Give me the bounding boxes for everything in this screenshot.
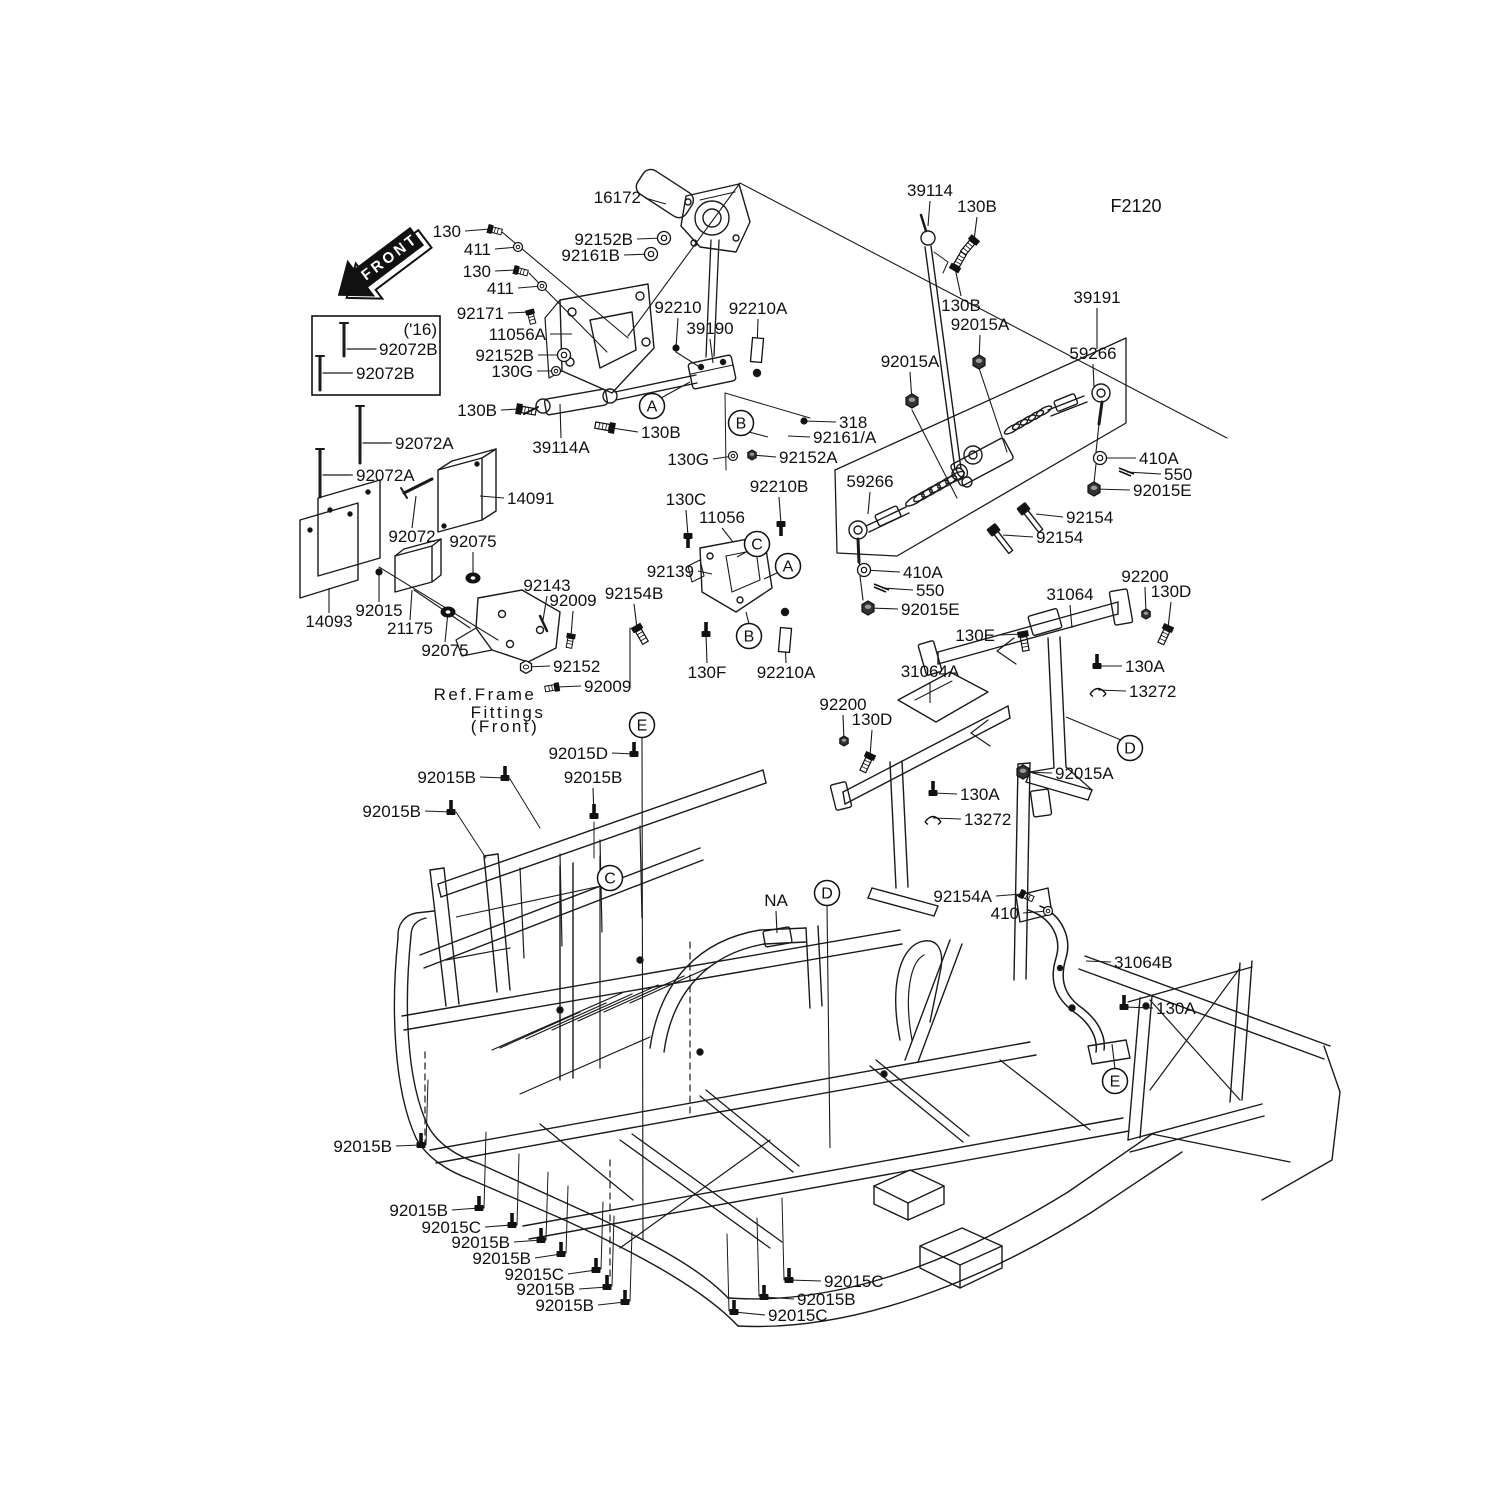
line-art-segment (520, 868, 524, 958)
line-art-segment (915, 681, 952, 700)
line-art-segment (1030, 768, 1054, 772)
part-label: 92152A (748, 448, 838, 467)
line-art-segment (843, 792, 845, 804)
line-art-segment (426, 1080, 428, 1145)
line-art-segment (603, 389, 617, 403)
screw-sm-icon (564, 633, 575, 649)
fiche-code: F2120 (1110, 196, 1161, 216)
washer-icon (1094, 452, 1107, 465)
callout-tail-line (456, 886, 601, 917)
part-number-text: 130B (941, 296, 981, 315)
stud-icon (621, 1290, 630, 1305)
line-art-segment (499, 611, 506, 618)
leader-line (634, 604, 637, 628)
part-number-text: 92015A (1055, 764, 1114, 783)
part-number-text: 92210A (729, 299, 788, 318)
callout-letter-text: C (604, 871, 616, 888)
line-art-segment (860, 576, 863, 600)
rect-icon (750, 338, 763, 363)
line-art-segment (517, 1154, 519, 1225)
line-art-segment (782, 1198, 784, 1280)
part-number-text: 92072A (356, 466, 415, 485)
washer-icon (645, 248, 658, 261)
part-label: 130B (957, 197, 997, 257)
nut-dark-icon (906, 394, 918, 408)
line-art-segment (308, 528, 312, 532)
part-number-text: 130C (666, 490, 707, 509)
line-art-segment (442, 524, 446, 528)
line-art-segment (568, 308, 576, 316)
washer-sm-icon (514, 243, 523, 252)
line-art-segment (874, 1186, 908, 1220)
screw-sm-icon (525, 308, 537, 324)
line-art-segment (714, 240, 719, 356)
part-number-text: 92075 (421, 641, 468, 660)
part-label: 92161B (561, 246, 657, 265)
part-label: 92072A (364, 434, 454, 453)
nut-icon (521, 661, 532, 674)
stud-icon (537, 1228, 546, 1243)
screw-sm-icon (1018, 889, 1035, 903)
part-label: 92015A (951, 315, 1010, 369)
part-number-text: 39114A (532, 438, 590, 457)
part-number-text: 130E (955, 626, 995, 645)
callout-letter-text: B (744, 629, 755, 646)
part-number-text: 410A (903, 563, 943, 582)
line-art-segment (394, 938, 560, 1218)
line-art-segment (1030, 789, 1051, 817)
line-art-segment (1150, 968, 1240, 1090)
part-number-text: 11056 (699, 508, 745, 527)
line-art-segment (566, 1186, 568, 1253)
callout-letter-text: E (1110, 1074, 1121, 1091)
part-number-text: 92154A (933, 887, 992, 906)
stud-icon (501, 766, 510, 781)
stud-icon (630, 742, 639, 757)
grommet-icon (441, 607, 456, 618)
leader-line (804, 421, 836, 422)
bolt-icon (949, 251, 969, 274)
line-art-segment (703, 209, 721, 227)
callout-A: A (640, 382, 691, 419)
line-art-segment (830, 781, 852, 810)
nut-sm-icon (840, 736, 848, 746)
nut-dark-icon (1088, 482, 1100, 496)
part-number-text: 31064A (901, 662, 960, 681)
part-number-text: 92015D (548, 744, 608, 763)
part-label: 92072B (348, 340, 438, 359)
leader-line (557, 686, 581, 687)
line-art-segment (402, 930, 900, 1016)
part-label: 14091 (480, 489, 554, 508)
line-art-segment (858, 539, 859, 562)
part-label: 130D (1151, 582, 1192, 646)
part-label: NA (764, 891, 788, 933)
nut-sm-icon (748, 450, 756, 460)
line-art-segment (630, 1232, 632, 1301)
part-label: 92210A (757, 628, 816, 682)
line-art-segment (510, 779, 540, 828)
line-art-segment (849, 521, 867, 539)
part-number-text: ('16) (404, 320, 437, 339)
line-art-segment (964, 446, 982, 464)
parts-diagram-page: FRONT F2120 Ref.Frame Fittings (Front) 1… (0, 0, 1500, 1500)
washer-icon (558, 349, 571, 362)
part-label: 39114A (532, 404, 590, 457)
leader-line (495, 270, 516, 271)
part-label: 11056 (699, 508, 745, 542)
part-number-text: 92152 (553, 657, 600, 676)
line-art-segment (526, 1003, 606, 1039)
parts-diagram-canvas: FRONT F2120 Ref.Frame Fittings (Front) 1… (0, 0, 1500, 1500)
part-number-text: 92015B (535, 1296, 594, 1315)
part-number-text: 92154 (1066, 508, 1113, 527)
part-number-text: 31064B (1114, 953, 1173, 972)
line-art-segment (921, 231, 935, 245)
line-art-segment (1262, 1046, 1340, 1200)
line-art-segment (348, 512, 352, 516)
nut-dark-icon (1017, 765, 1029, 779)
part-number-text: 130G (491, 362, 533, 381)
part-number-text: 13272 (1129, 682, 1176, 701)
stud-icon (603, 1275, 612, 1290)
leader-line (412, 496, 416, 528)
rect-icon (778, 628, 791, 653)
part-label: 13272 (1090, 682, 1176, 701)
line-art-segment (706, 1090, 799, 1166)
part-label: 410A (858, 563, 944, 582)
line-art-segment (685, 199, 691, 205)
line-art-segment (1242, 961, 1252, 1100)
line-art-segment (436, 1055, 1036, 1163)
line-art-segment (757, 1218, 759, 1296)
leader-line (1086, 961, 1111, 962)
ref-note-line1: Ref.Frame (434, 685, 537, 704)
stud-icon (557, 1242, 566, 1257)
leader-line (868, 492, 870, 514)
part-label: 92015D (548, 742, 638, 763)
callout-letter-text: C (751, 537, 763, 554)
line-art-segment (482, 449, 496, 520)
line-art-segment (676, 352, 698, 366)
leader-line (1036, 514, 1063, 517)
leader-line (722, 528, 733, 542)
part-number-text: 130B (641, 423, 681, 442)
line-art-segment (1230, 963, 1240, 1102)
part-label: 92154 (1003, 528, 1083, 547)
callout-letter-text: E (637, 718, 648, 735)
line-art-segment (636, 292, 644, 300)
line-art-segment (590, 312, 636, 368)
part-number-text: 92171 (457, 304, 504, 323)
line-art-segment (612, 1216, 614, 1286)
dot-icon (800, 417, 807, 424)
part-number-text: 92015B (333, 1137, 392, 1156)
part-number-text: 92161/A (813, 428, 877, 447)
line-art-segment (544, 389, 608, 416)
part-label: 39114 (907, 181, 953, 226)
diagram-line-art (300, 166, 1340, 1326)
line-art-segment (691, 365, 733, 374)
line-art-segment (918, 944, 962, 1062)
line-art-segment (1128, 998, 1140, 1140)
line-art-segment (754, 370, 761, 377)
line-art-segment (1097, 389, 1105, 397)
line-art-segment (557, 1007, 563, 1013)
part-number-text: 13272 (964, 810, 1011, 829)
part-label: 92015B (564, 768, 623, 819)
part-number-text: 92009 (549, 591, 596, 610)
line-art-segment (1128, 967, 1252, 1002)
part-number-text: 92154 (1036, 528, 1083, 547)
part-label: 92072 (388, 496, 435, 546)
callout-D: D (1066, 717, 1143, 761)
line-art-segment (395, 546, 432, 592)
part-number-text: 130A (1125, 657, 1165, 676)
part-label: 92009 (544, 677, 631, 696)
line-art-segment (552, 994, 632, 1030)
line-art-segment (763, 770, 766, 783)
part-number-text: 92009 (584, 677, 631, 696)
stud-icon (785, 1268, 794, 1283)
washer-sm-icon (729, 452, 738, 461)
leader-line (1093, 364, 1094, 387)
screw-sm-icon (486, 224, 502, 236)
part-number-text: 92152A (779, 448, 838, 467)
part-label: 92015B (362, 800, 455, 821)
part-label: 550 (874, 581, 944, 600)
stud-icon (475, 1196, 484, 1211)
line-art-segment (318, 480, 380, 576)
part-number-text: 92015C (768, 1306, 828, 1325)
line-art-segment (438, 458, 482, 532)
callout-E: E (1103, 1044, 1128, 1094)
line-art-segment (545, 300, 560, 318)
part-number-text: 92210B (750, 477, 809, 496)
part-label: 31064B (1086, 953, 1173, 972)
line-art-segment (398, 911, 434, 938)
line-art-segment (868, 898, 934, 916)
line-art-segment (1088, 790, 1092, 800)
part-label: 92072A (325, 466, 415, 485)
bolt-icon (594, 420, 616, 434)
part-number-text: 92210 (654, 298, 701, 317)
leader-line (1168, 602, 1171, 628)
washer-sm-icon (552, 367, 561, 376)
line-art-segment (806, 928, 810, 1008)
part-label: 59266 (1069, 344, 1116, 387)
callout-tail-line (764, 572, 779, 579)
part-number-text: 92015B (417, 768, 476, 787)
part-number-text: 92015 (355, 601, 402, 620)
part-label: 31064 (1046, 585, 1093, 628)
leader-line (789, 1280, 821, 1281)
leader-line (734, 1312, 765, 1315)
part-label: 130G (491, 362, 560, 381)
line-art-segment (872, 888, 938, 906)
line-art-segment (520, 1037, 650, 1094)
line-art-segment (960, 1246, 1002, 1288)
nut-sm-icon (1142, 609, 1150, 619)
part-label: 92015E (1088, 481, 1192, 500)
line-art-segment (700, 192, 735, 200)
part-number-text: 31064 (1046, 585, 1093, 604)
part-label: 92139 (647, 562, 712, 581)
line-art-segment (1140, 996, 1152, 1138)
part-number-text: 39114 (907, 181, 953, 200)
bolt-icon (631, 623, 651, 646)
part-number-text: 92072B (379, 340, 438, 359)
line-art-segment (782, 609, 789, 616)
line-art-segment (1048, 638, 1054, 768)
line-art-segment (1000, 1060, 1090, 1130)
leader-line (480, 496, 504, 498)
stud-icon (1093, 654, 1102, 669)
callout-tail-line (827, 905, 830, 1148)
part-number-text: 92210A (757, 663, 816, 682)
stud-icon (592, 1258, 601, 1273)
line-art-segment (1088, 1040, 1130, 1064)
part-label: 92210B (750, 477, 809, 536)
part-label: 92015B (389, 1196, 483, 1220)
line-art-segment (1094, 464, 1096, 483)
part-number-text: 92154B (605, 584, 664, 603)
line-art-segment (934, 906, 938, 916)
line-art-segment (1018, 763, 1030, 764)
part-label: 92210A (729, 299, 788, 362)
part-number-text: 130D (852, 710, 893, 729)
part-number-text: 92015A (951, 315, 1010, 334)
line-art-segment (424, 860, 703, 968)
part-label: 31064A (901, 662, 960, 703)
part-number-text: 130B (457, 401, 497, 420)
part-number-text: 92015B (564, 768, 623, 787)
part-number-text: 92139 (647, 562, 694, 581)
part-number-text: 130B (957, 197, 997, 216)
stud-icon (760, 1285, 769, 1300)
part-number-text: 92072B (356, 364, 415, 383)
nut-dark-icon (973, 355, 985, 369)
leader-line (686, 510, 688, 536)
part-label: 13272 (925, 810, 1011, 829)
part-number-text: 92015E (901, 600, 960, 619)
part-number-text: 14093 (305, 612, 352, 631)
callout-tail-line (1066, 717, 1121, 740)
leader-line (1070, 605, 1072, 628)
leader-line (645, 198, 666, 204)
part-number-text: 59266 (1069, 344, 1116, 363)
part-number-text: 59266 (846, 472, 893, 491)
part-number-text: 16172 (594, 188, 641, 207)
screw-sm-icon (512, 265, 528, 277)
washer-sm-icon (1044, 907, 1053, 916)
line-art-segment (1079, 969, 1324, 1059)
line-art-segment (727, 1234, 729, 1311)
part-label: 92015A (1017, 764, 1114, 783)
part-number-text: 92015E (1133, 481, 1192, 500)
line-art-segment (632, 1134, 782, 1242)
leader-line (788, 436, 810, 437)
part-label: 92161/A (788, 428, 877, 447)
part-number-text: 130 (433, 222, 461, 241)
part-label: 130B (457, 401, 536, 420)
callout-letter-text: A (647, 399, 658, 416)
part-number-text: 92015A (881, 352, 940, 371)
line-art-segment (707, 553, 713, 559)
line-art-segment (407, 936, 566, 1203)
bolt-icon (858, 751, 876, 774)
part-number-text: 550 (916, 581, 944, 600)
washer-icon (858, 564, 871, 577)
grommet-icon (466, 573, 481, 584)
part-number-text: 39191 (1073, 288, 1120, 307)
line-art-segment (881, 1071, 887, 1077)
callout-letter-text: B (736, 416, 747, 433)
ref-note-line3: (Front) (471, 717, 540, 736)
leader-line (676, 318, 678, 348)
line-art-segment (818, 926, 822, 1006)
leader-line (571, 611, 573, 636)
callout-letter-text: A (783, 559, 794, 576)
line-art-segment (868, 888, 872, 898)
leader-line (1003, 535, 1033, 537)
part-label: 92154 (1036, 508, 1113, 527)
line-art-segment (905, 940, 950, 1060)
line-art-segment (920, 1228, 1002, 1265)
part-number-text: 92015C (824, 1272, 884, 1291)
line-art-segment (484, 856, 497, 992)
part-number-text: 14091 (507, 489, 554, 508)
part-number-text: 130G (667, 450, 709, 469)
line-art-segment (902, 761, 908, 887)
leader-line (543, 596, 547, 620)
leader-line (870, 730, 872, 756)
washer-icon (658, 232, 671, 245)
line-art-segment (1026, 763, 1030, 979)
part-label: 130B (941, 251, 981, 315)
stud-icon (447, 800, 456, 815)
line-art-segment (725, 393, 726, 470)
bolt-icon (959, 234, 980, 256)
line-art-segment (1040, 906, 1104, 1050)
line-art-segment (438, 884, 441, 897)
part-number-text: 411 (464, 240, 491, 259)
stud-icon (702, 622, 711, 637)
part-label: 130A (1093, 654, 1166, 676)
line-art-segment (890, 762, 896, 888)
line-art-segment (430, 868, 444, 870)
part-label: 92015A (881, 352, 940, 408)
leader-line (779, 497, 781, 524)
part-label: 92015E (862, 600, 960, 619)
part-label: ('16) (404, 320, 437, 339)
line-art-segment (633, 166, 697, 221)
line-art-segment (979, 368, 1007, 452)
part-number-text: 410 (991, 904, 1019, 923)
part-number-text: 130F (688, 663, 727, 682)
line-art-segment (578, 985, 658, 1021)
ref-frame-fittings-note: Ref.Frame Fittings (Front) (434, 685, 546, 736)
line-art-segment (537, 627, 544, 634)
line-art-segment (523, 1118, 1123, 1226)
line-art-segment (1060, 637, 1066, 767)
washer-sm-icon (538, 282, 547, 291)
line-art-segment (484, 1132, 486, 1208)
line-art-segment (650, 928, 806, 1048)
part-label: 92154B (605, 584, 664, 645)
part-label: 39190 (686, 319, 733, 363)
line-art-segment (854, 526, 862, 534)
